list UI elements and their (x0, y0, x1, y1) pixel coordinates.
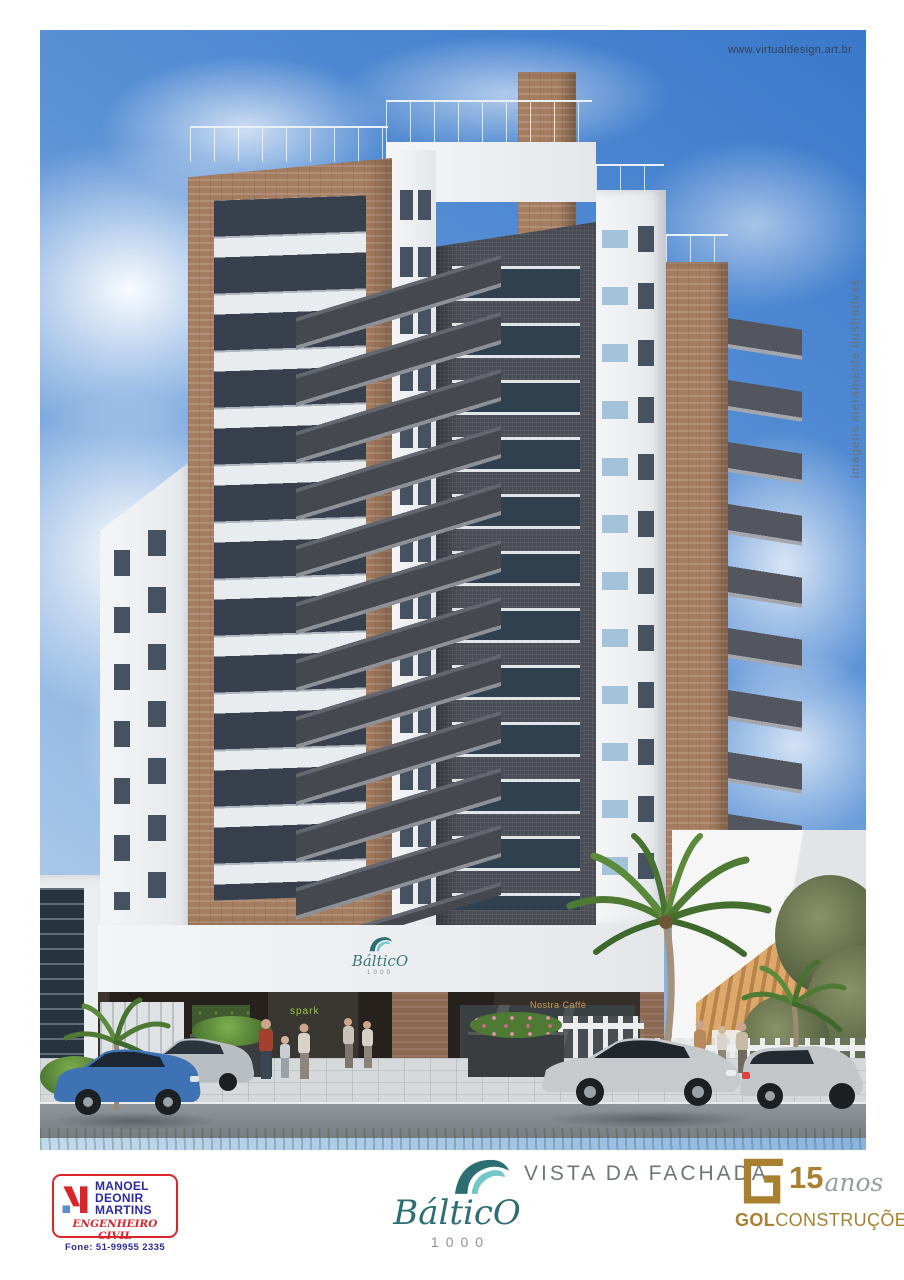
person-woman (298, 1024, 310, 1080)
builder-logo: 15 anos GOLCONSTRUÇÕES (735, 1154, 887, 1231)
person-child (280, 1036, 290, 1078)
engineer-phone: Fone: 51-99955 2335 (60, 1242, 170, 1253)
facade-render: www.virtualdesign.art.br imagens meramen… (40, 30, 866, 1150)
builder-g-icon (735, 1154, 785, 1204)
facade-wave-icon (367, 933, 393, 953)
builder-name-rest: CONSTRUÇÕES (775, 1210, 904, 1230)
brand-name: BálticO (372, 1193, 542, 1233)
illustrative-disclaimer: imagens meramente ilustrativas (848, 208, 862, 478)
engineer-monogram-icon (60, 1180, 90, 1216)
left-side-windows (148, 530, 166, 910)
car-silver-hatchback (734, 1038, 866, 1120)
presentation-board: www.virtualdesign.art.br imagens meramen… (0, 0, 904, 1280)
person-woman (343, 1018, 354, 1068)
right-brick-column (666, 262, 728, 928)
right-face-windows (638, 226, 654, 910)
engineer-stamp: MANOEL DEONIR MARTINS ENGENHEIRO CIVIL F… (52, 1174, 178, 1238)
facade-brand-sign: BálticO 1000 (328, 933, 432, 989)
engineer-name-line: MARTINS (95, 1204, 152, 1216)
car-silver-sedan (538, 1030, 748, 1116)
view-caption: VISTA DA FACHADA (524, 1162, 769, 1186)
brand-wave-icon (448, 1150, 512, 1198)
brand-logo: BálticO 1000 (372, 1150, 542, 1274)
person-woman (362, 1021, 373, 1068)
facade-brand-name: BálticO (328, 954, 432, 969)
left-side-windows (114, 550, 130, 910)
facade-brand-number: 1000 (328, 969, 432, 976)
builder-years-word: anos (824, 1170, 883, 1195)
builder-years: 15 (789, 1162, 823, 1193)
pedestrians-center (252, 1016, 382, 1098)
right-face-balustrades (602, 230, 628, 910)
builder-name: GOLCONSTRUÇÕES (735, 1210, 887, 1231)
brand-number: 1000 (372, 1234, 542, 1250)
builder-name-bold: GOL (735, 1210, 775, 1230)
grass-strip (40, 1128, 866, 1150)
person-man (259, 1019, 273, 1079)
engineer-title: ENGENHEIRO CIVIL (60, 1218, 170, 1242)
penthouse-glass-railing (386, 100, 592, 148)
diagonal-balcony-stack (296, 255, 501, 958)
car-blue-hatchback (48, 1042, 208, 1126)
left-tower-roof-railing (190, 126, 388, 162)
studio-watermark: www.virtualdesign.art.br (728, 44, 852, 56)
right-balcony-stack (728, 318, 802, 890)
